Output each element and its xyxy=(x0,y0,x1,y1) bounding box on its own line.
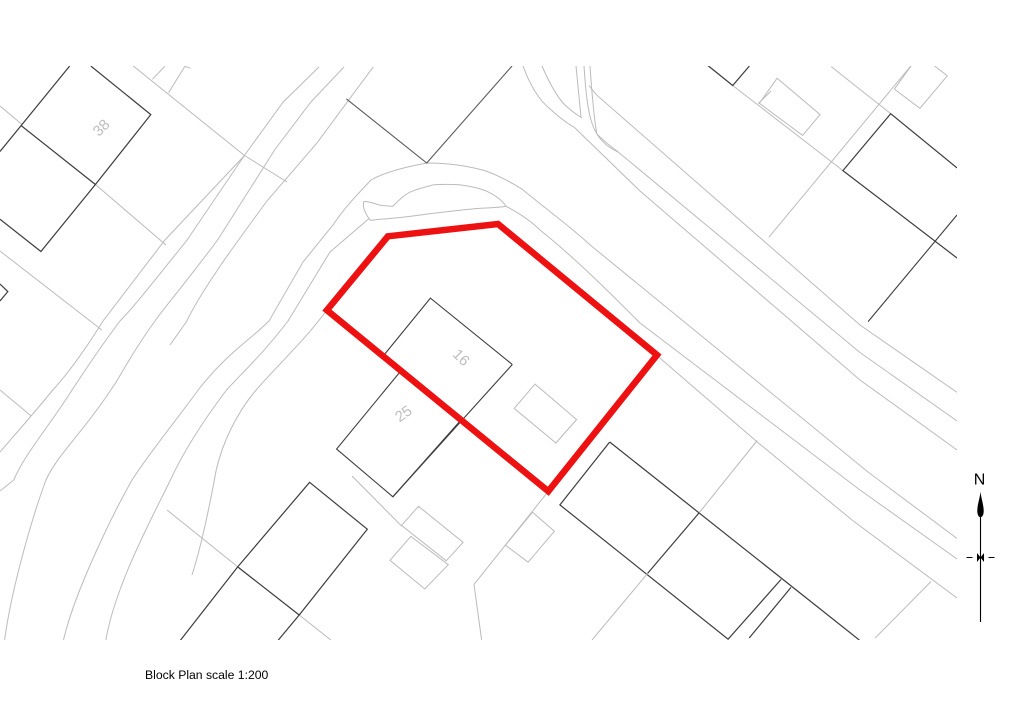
svg-text:N: N xyxy=(974,472,986,489)
svg-text:16: 16 xyxy=(449,346,473,370)
svg-text:Block Plan scale 1:200: Block Plan scale 1:200 xyxy=(145,668,269,682)
svg-text:38: 38 xyxy=(90,116,114,140)
svg-text:25: 25 xyxy=(392,402,415,425)
